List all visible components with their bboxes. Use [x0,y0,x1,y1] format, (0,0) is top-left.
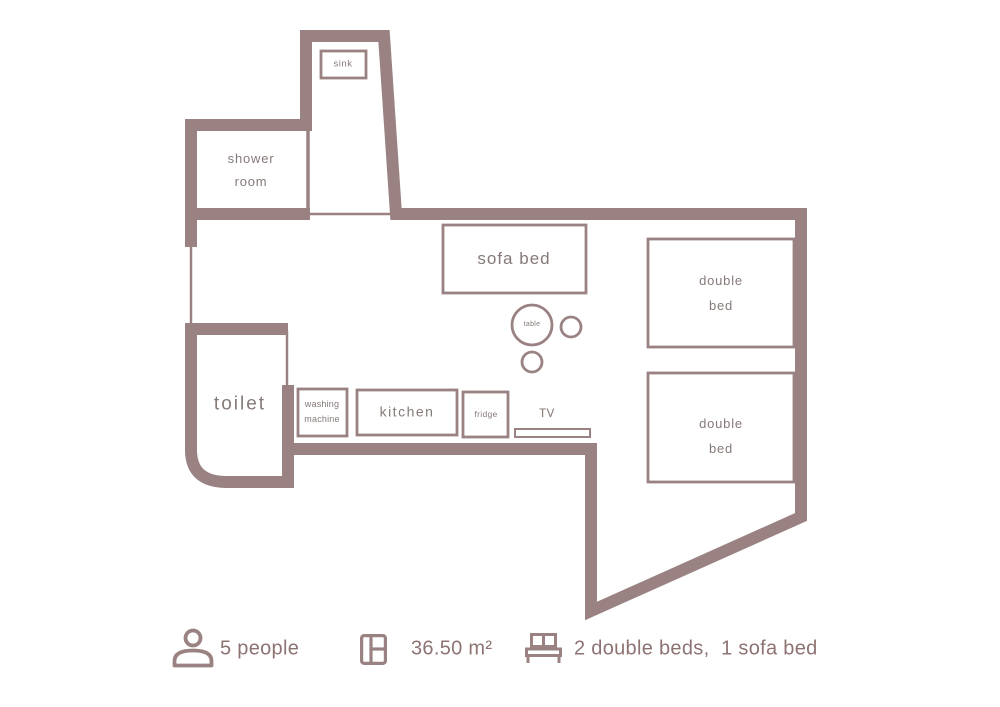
floorplan-icon [360,634,387,665]
tv-outline [515,429,590,437]
double-bed-1-label: double bed [699,268,743,318]
area-text: 36.50 m² [411,638,492,661]
floor-plan-page: sink shower room toilet washing machine … [0,0,1000,707]
tv-label: TV [539,408,555,422]
stool-circle-bottom [522,352,542,372]
capacity-text: 5 people [220,638,299,661]
toilet-label: toilet [214,394,266,417]
beds-text: 2 double beds, 1 sofa bed [574,638,818,661]
person-icon [171,628,215,668]
bed-icon [525,633,562,664]
double-bed-2-label: double bed [699,411,743,461]
sink-label: sink [334,58,353,69]
kitchen-label: kitchen [380,404,435,421]
table-label: table [524,321,541,329]
stool-circle-right [561,317,581,337]
washing-machine-label: washing machine [304,397,339,427]
shower-room-label: shower room [228,147,275,193]
fridge-label: fridge [474,409,497,419]
floor-plan [0,0,1000,707]
sofa-bed-label: sofa bed [477,249,550,269]
